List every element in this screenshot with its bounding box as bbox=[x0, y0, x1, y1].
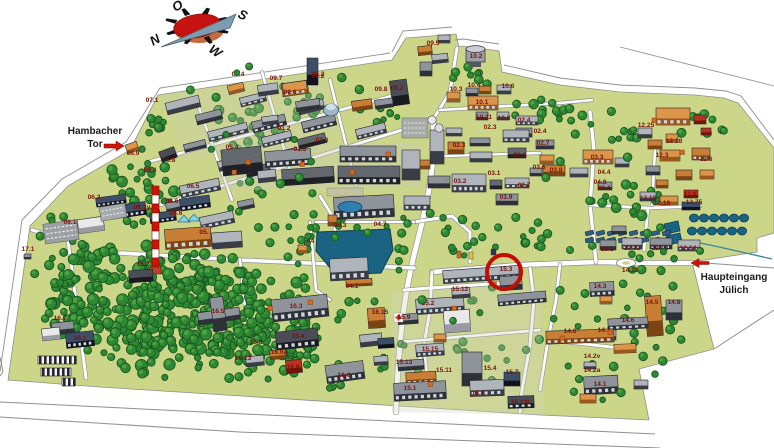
svg-text:16.1: 16.1 bbox=[74, 335, 87, 342]
svg-text:03.4: 03.4 bbox=[598, 185, 611, 192]
svg-text:12.1: 12.1 bbox=[601, 246, 614, 253]
svg-text:02.3: 02.3 bbox=[484, 124, 497, 131]
svg-text:10.2: 10.2 bbox=[470, 53, 483, 60]
svg-text:10.3: 10.3 bbox=[450, 86, 463, 93]
svg-text:10.1: 10.1 bbox=[476, 99, 489, 106]
svg-text:06.3y: 06.3y bbox=[134, 204, 151, 211]
svg-text:09.2: 09.2 bbox=[391, 85, 404, 92]
svg-text:12.8: 12.8 bbox=[684, 191, 697, 198]
svg-text:12.75: 12.75 bbox=[686, 199, 703, 206]
svg-text:02.4: 02.4 bbox=[518, 117, 531, 124]
svg-text:15.4: 15.4 bbox=[472, 390, 485, 397]
svg-text:16.3: 16.3 bbox=[290, 303, 303, 310]
svg-text:12.3: 12.3 bbox=[656, 152, 669, 159]
svg-text:12.25: 12.25 bbox=[638, 122, 655, 129]
svg-text:15.11: 15.11 bbox=[436, 367, 452, 374]
svg-text:06.9: 06.9 bbox=[127, 150, 140, 157]
svg-text:12.6: 12.6 bbox=[700, 156, 713, 163]
svg-text:01.6: 01.6 bbox=[316, 137, 329, 144]
svg-text:03.9: 03.9 bbox=[500, 194, 513, 201]
svg-text:05.4: 05.4 bbox=[226, 144, 239, 151]
svg-text:05.2: 05.2 bbox=[312, 71, 325, 78]
svg-text:09.5: 09.5 bbox=[427, 40, 440, 47]
svg-text:16.7: 16.7 bbox=[54, 315, 67, 322]
svg-text:09.7: 09.7 bbox=[270, 75, 283, 82]
svg-text:12.16: 12.16 bbox=[654, 200, 671, 207]
svg-text:15.15: 15.15 bbox=[422, 346, 439, 353]
svg-text:14.2a: 14.2a bbox=[584, 367, 601, 374]
svg-text:05.: 05. bbox=[199, 229, 208, 236]
svg-text:15.12: 15.12 bbox=[452, 286, 469, 293]
svg-text:02.3: 02.3 bbox=[453, 142, 466, 149]
svg-text:01.5: 01.5 bbox=[294, 146, 307, 153]
svg-text:07.1: 07.1 bbox=[146, 97, 159, 104]
svg-text:14.1: 14.1 bbox=[594, 381, 607, 388]
svg-text:15.4: 15.4 bbox=[484, 365, 497, 372]
svg-text:14.5: 14.5 bbox=[646, 299, 659, 306]
svg-text:16.4: 16.4 bbox=[292, 333, 305, 340]
svg-text:09.6: 09.6 bbox=[284, 89, 297, 96]
svg-text:03.2: 03.2 bbox=[454, 178, 467, 185]
svg-text:14.3: 14.3 bbox=[594, 283, 607, 290]
svg-text:14.8: 14.8 bbox=[668, 299, 681, 306]
svg-text:17.1: 17.1 bbox=[22, 246, 35, 253]
svg-text:Jülich: Jülich bbox=[720, 285, 749, 296]
svg-text:14.6: 14.6 bbox=[564, 328, 577, 335]
svg-text:02.8: 02.8 bbox=[514, 152, 527, 159]
svg-text:04.4: 04.4 bbox=[598, 169, 611, 176]
svg-text:04.7: 04.7 bbox=[374, 221, 387, 228]
svg-text:14.6: 14.6 bbox=[622, 317, 635, 324]
svg-text:04.8: 04.8 bbox=[594, 179, 607, 186]
svg-text:Haupteingang: Haupteingang bbox=[701, 272, 768, 283]
svg-text:01.2: 01.2 bbox=[278, 125, 291, 132]
svg-text:Hambacher: Hambacher bbox=[68, 126, 123, 137]
svg-text:16.6a: 16.6a bbox=[271, 349, 288, 356]
svg-text:06.1: 06.1 bbox=[64, 219, 77, 226]
svg-text:10.6: 10.6 bbox=[502, 83, 515, 90]
svg-text:06.4: 06.4 bbox=[144, 167, 157, 174]
svg-text:06.5: 06.5 bbox=[187, 183, 200, 190]
svg-text:15.7: 15.7 bbox=[506, 369, 519, 376]
svg-text:06.8: 06.8 bbox=[163, 157, 176, 164]
svg-text:06.6: 06.6 bbox=[166, 198, 179, 205]
svg-text:16.5: 16.5 bbox=[212, 308, 225, 315]
svg-text:10.11: 10.11 bbox=[476, 114, 492, 121]
svg-text:05.6: 05.6 bbox=[170, 210, 183, 217]
svg-text:16.6: 16.6 bbox=[338, 372, 351, 379]
svg-text:15.1: 15.1 bbox=[404, 385, 417, 392]
svg-text:14.2v: 14.2v bbox=[584, 353, 601, 360]
svg-text:15.13: 15.13 bbox=[396, 359, 413, 366]
svg-text:03.3: 03.3 bbox=[591, 154, 604, 161]
svg-text:12.18: 12.18 bbox=[666, 138, 683, 145]
svg-text:03.7: 03.7 bbox=[518, 182, 531, 189]
svg-text:09.8: 09.8 bbox=[375, 86, 388, 93]
svg-text:16.8: 16.8 bbox=[250, 339, 263, 346]
svg-text:12.12: 12.12 bbox=[624, 245, 641, 252]
svg-text:16.15: 16.15 bbox=[372, 309, 389, 316]
svg-text:12.14: 12.14 bbox=[680, 245, 697, 252]
svg-text:15.9: 15.9 bbox=[398, 314, 411, 321]
svg-text:10.4: 10.4 bbox=[468, 82, 481, 89]
svg-text:06.2: 06.2 bbox=[88, 194, 101, 201]
svg-text:02.4: 02.4 bbox=[534, 128, 547, 135]
svg-text:04.1: 04.1 bbox=[346, 283, 359, 290]
svg-text:15.3: 15.3 bbox=[500, 266, 513, 273]
svg-text:16.13: 16.13 bbox=[235, 355, 252, 362]
svg-text:10.8: 10.8 bbox=[498, 115, 511, 122]
svg-text:04.3: 04.3 bbox=[334, 222, 347, 229]
svg-text:15.13I: 15.13I bbox=[511, 399, 530, 406]
svg-text:Tor: Tor bbox=[87, 139, 102, 150]
svg-text:14.11: 14.11 bbox=[622, 267, 638, 274]
svg-text:03.6: 03.6 bbox=[533, 164, 546, 171]
svg-text:03.8: 03.8 bbox=[550, 167, 563, 174]
svg-text:02.7: 02.7 bbox=[537, 140, 550, 147]
svg-text:16.2: 16.2 bbox=[137, 261, 150, 268]
svg-text:03.1: 03.1 bbox=[488, 170, 501, 177]
svg-text:16.9: 16.9 bbox=[287, 364, 300, 371]
